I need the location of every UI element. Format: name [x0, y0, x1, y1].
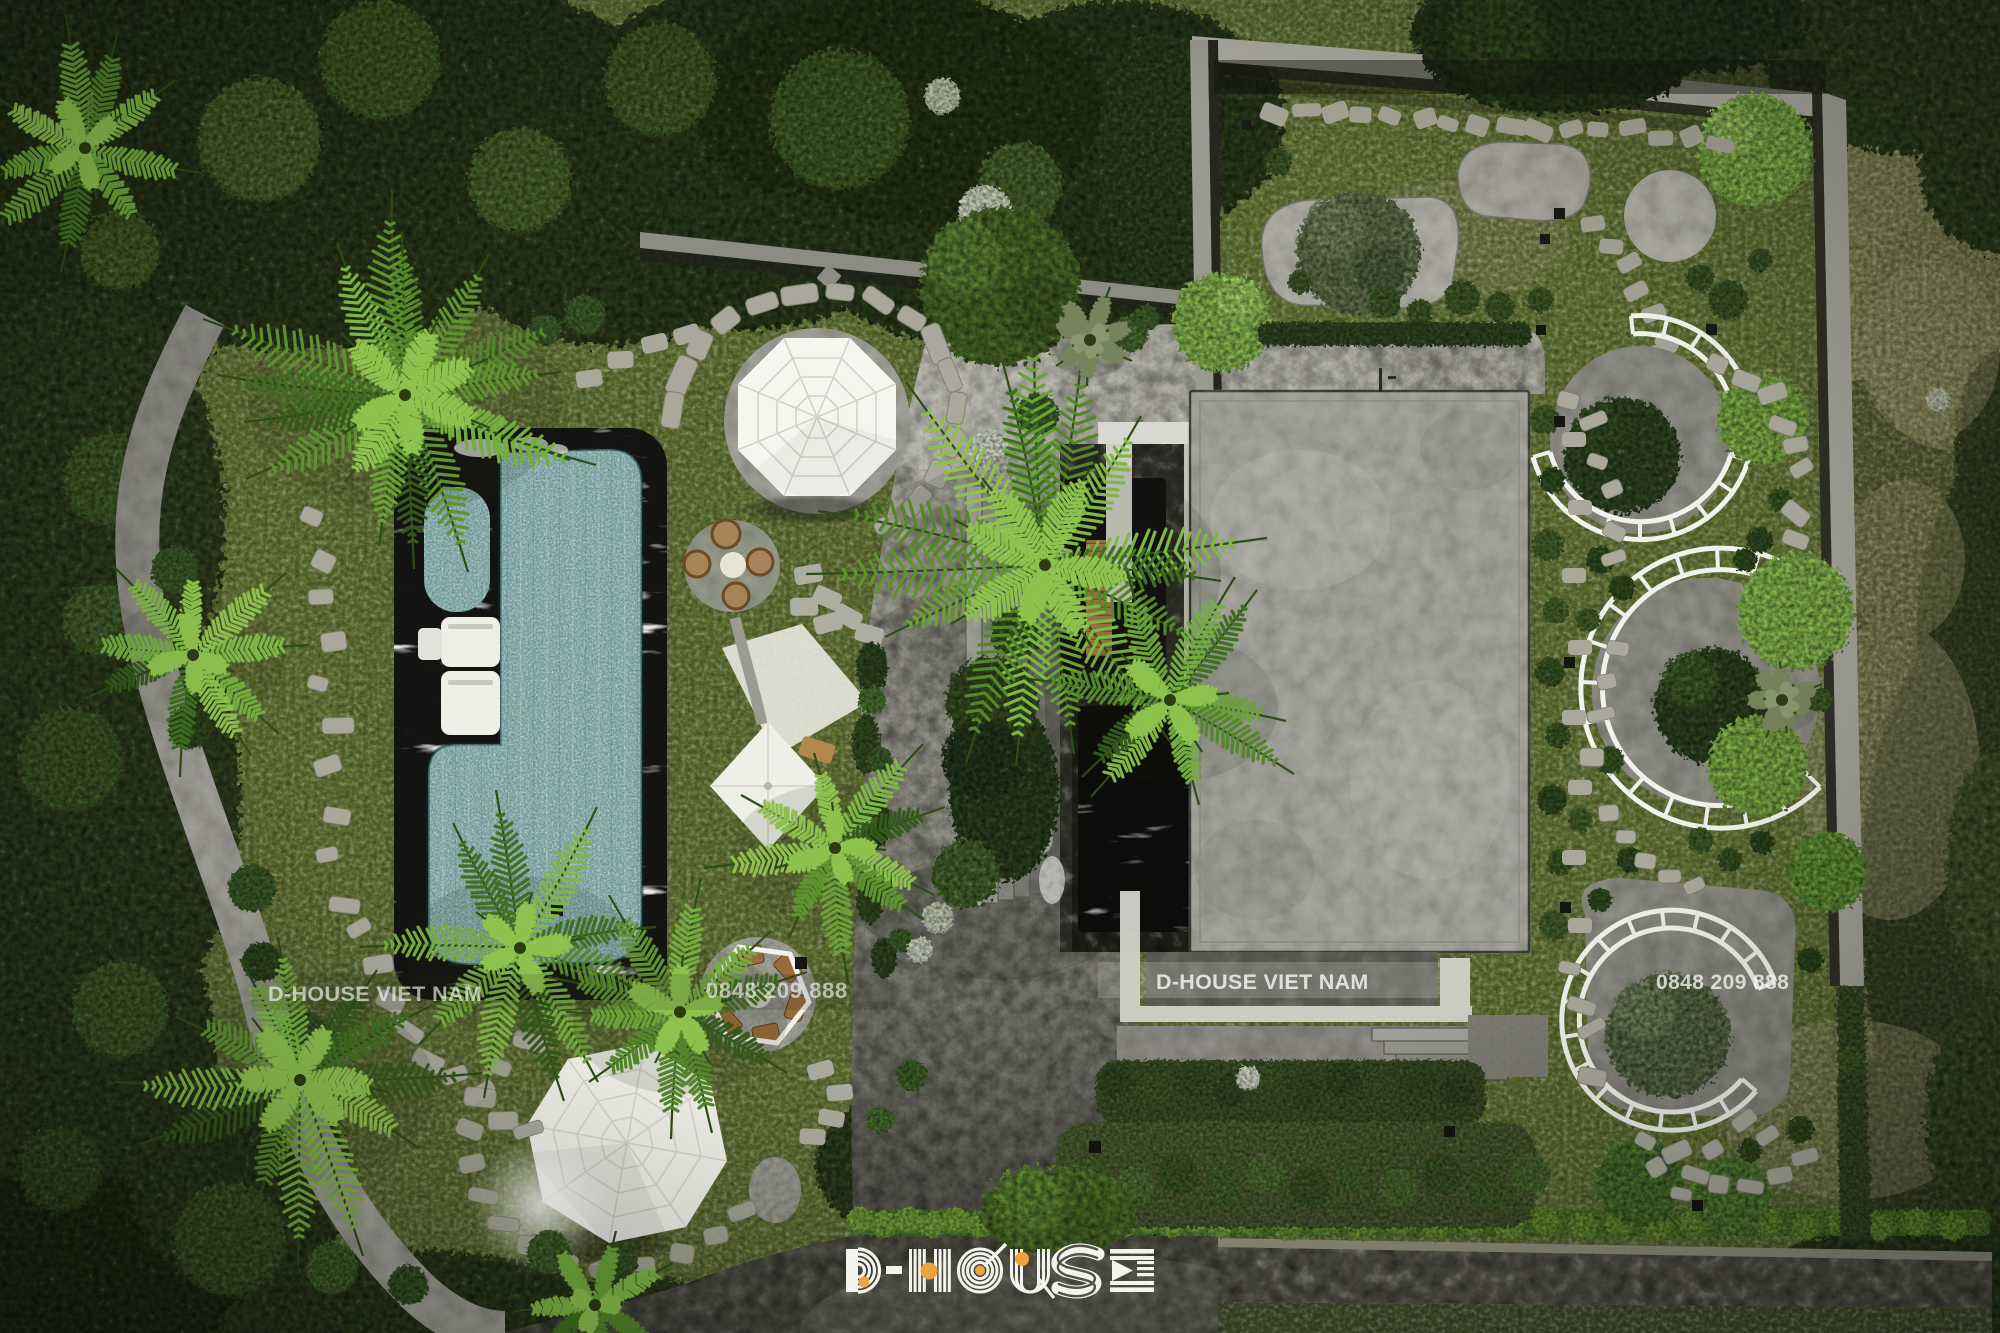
svg-text:D-HOUSE VIET NAM: D-HOUSE VIET NAM: [268, 982, 482, 1006]
svg-text:0848 209 888: 0848 209 888: [1656, 971, 1789, 994]
svg-text:0848 209 888: 0848 209 888: [706, 978, 848, 1003]
svg-text:D-HOUSE VIET NAM: D-HOUSE VIET NAM: [1156, 970, 1369, 994]
